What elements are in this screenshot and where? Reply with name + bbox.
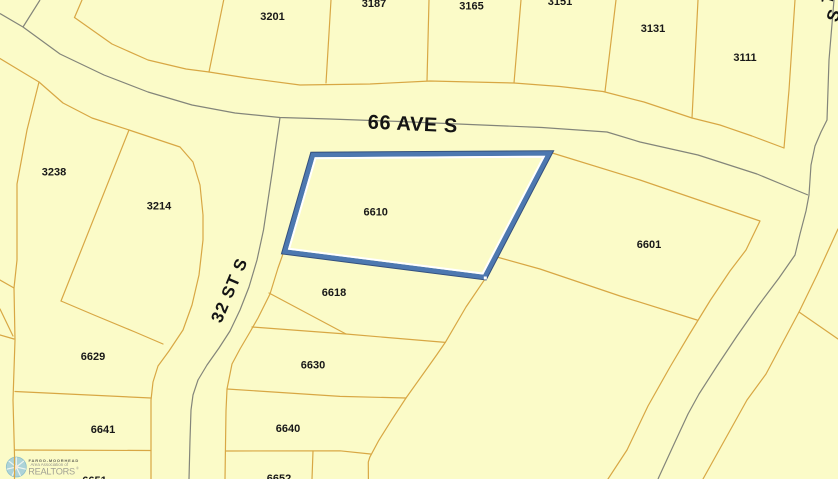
- svg-text:®: ®: [76, 466, 79, 471]
- svg-text:6610: 6610: [363, 207, 387, 219]
- svg-text:6629: 6629: [81, 351, 105, 363]
- svg-text:66 AVE S: 66 AVE S: [367, 112, 458, 138]
- svg-text:6652: 6652: [267, 473, 291, 479]
- svg-text:6630: 6630: [301, 360, 325, 372]
- svg-text:6601: 6601: [637, 239, 661, 251]
- svg-text:3201: 3201: [260, 11, 284, 23]
- svg-text:6618: 6618: [322, 287, 346, 299]
- svg-text:6651: 6651: [82, 475, 106, 479]
- svg-text:3111: 3111: [733, 52, 756, 64]
- svg-text:3165: 3165: [459, 1, 483, 13]
- svg-text:3131: 3131: [641, 23, 665, 35]
- svg-text:6640: 6640: [276, 423, 300, 435]
- svg-text:6641: 6641: [91, 424, 115, 436]
- svg-text:3214: 3214: [147, 201, 172, 213]
- svg-text:3187: 3187: [362, 0, 386, 10]
- svg-text:3238: 3238: [42, 167, 66, 179]
- svg-text:3151: 3151: [548, 0, 572, 8]
- svg-text:REALTORS: REALTORS: [28, 467, 75, 477]
